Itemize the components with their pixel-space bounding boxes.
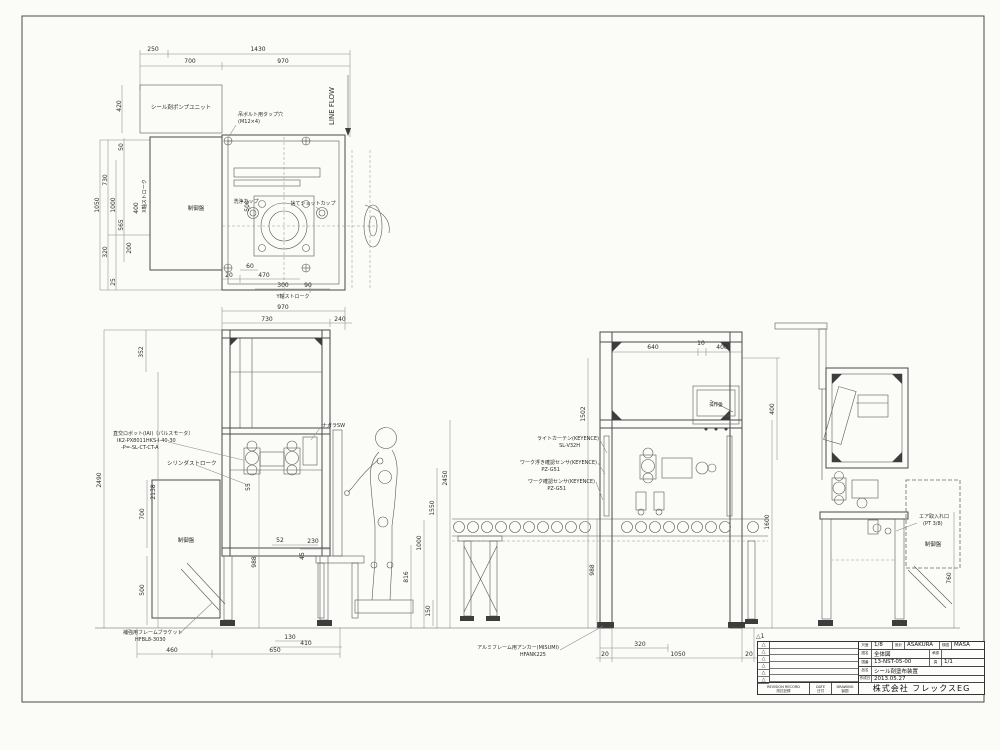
- dim-label: 250: [147, 46, 159, 53]
- drawing-number-label: 図番: [859, 659, 872, 666]
- date-label: 作成日: [859, 676, 872, 682]
- revision-mark-column: △ △ △ △ △ △: [758, 642, 770, 682]
- scale-label: 尺度: [859, 642, 872, 649]
- dim-label: 20: [225, 272, 233, 279]
- dim-label: 55: [245, 483, 252, 491]
- dim-label: 25: [110, 278, 117, 286]
- front-view-geometry: [104, 307, 450, 658]
- dim-label: 200: [126, 242, 133, 254]
- frame-bracket-callout: 補強用フレームブラケット: [123, 629, 183, 636]
- title-block-main: 尺度 1/8 設計 ASAKURA 検図 MASA 図名 全体図 承認 図番 1…: [859, 642, 984, 694]
- cylinder-stroke-callout: シリンダストローク: [167, 459, 217, 467]
- nagara-sw-callout: ナガラSW: [322, 422, 345, 429]
- dim-label: 1000: [416, 535, 423, 550]
- date-value: 2013.05.27: [872, 676, 984, 682]
- title-row-product: 品名 シール剤塗布装置: [859, 667, 984, 676]
- work-sensor-callout: ワーク確認センサ(KEYENCE): [528, 478, 595, 485]
- dim-label: 20: [745, 651, 753, 658]
- dim-label: 50: [118, 143, 125, 151]
- air-inlet-callout: (PT 3/8): [923, 521, 943, 527]
- light-curtain-callout: ライトカーテン(KEYENCE): [537, 436, 599, 442]
- dim-label: 700: [184, 58, 196, 65]
- title-row-scale: 尺度 1/8 設計 ASAKURA 検図 MASA: [859, 642, 984, 650]
- dim-label: 230: [307, 538, 319, 545]
- revision-header: REVISION RECORD改訂記録 DATE日付 DRAWING製図: [758, 682, 858, 694]
- dim-label: 60: [246, 263, 254, 270]
- dim-label: 320: [634, 641, 646, 648]
- control-panel-label: 制御盤: [925, 540, 942, 548]
- waste-shot-cup-label: 捨てショットカップ: [290, 200, 335, 207]
- checked-label: 検図: [939, 642, 952, 649]
- drawing-page: 250 1430 700 970 1050 730 320 1000 25 50…: [0, 0, 1000, 750]
- title-row-number: 図番 13-NST-05-00 頁 1/1: [859, 659, 984, 667]
- designed-label: 設計: [892, 642, 905, 649]
- dim-label: 90: [304, 282, 312, 289]
- eyebolt-callout: (M12×4): [238, 119, 260, 125]
- dim-label: 650: [269, 647, 281, 654]
- dim-label: 460: [166, 647, 178, 654]
- date-column-header: DATE日付: [810, 683, 832, 694]
- revision-rows: [770, 642, 858, 682]
- dim-label: 1550: [429, 500, 436, 515]
- light-curtain-callout: SL-V32H: [559, 443, 580, 449]
- control-panel-label: 制御盤: [188, 204, 205, 212]
- revision-table: △ △ △ △ △ △ REVISION RECORD改訂記録 DATE日付 D…: [758, 642, 859, 694]
- dim-label: 640: [647, 344, 659, 351]
- air-inlet-callout: エア取入れ口: [919, 514, 949, 520]
- line-flow-label: LINE FLOW: [328, 87, 336, 125]
- dim-label: 700: [139, 508, 146, 520]
- dim-label: 1430: [250, 46, 265, 53]
- dim-label: 20: [601, 651, 609, 658]
- station-view: 640 10 400 400 1502 988 1600 ライトカーテン(KEY…: [452, 332, 780, 662]
- dim-label: 988: [251, 556, 258, 568]
- revision-mark: △: [758, 642, 769, 649]
- product-label: 品名: [859, 667, 872, 675]
- title-row-name: 図名 全体図 承認: [859, 650, 984, 659]
- dim-label: 730: [261, 316, 273, 323]
- eyebolt-callout: 吊ボルト用タップ穴: [238, 111, 283, 118]
- drawing-name-value: 全体図: [872, 650, 929, 658]
- drawing-column-header: DRAWING製図: [832, 683, 858, 694]
- sheet-value: 1/1: [942, 659, 984, 666]
- dim-label: 2490: [96, 472, 103, 487]
- drawing-number-value: 13-NST-05-00: [872, 659, 929, 666]
- y-axis-stroke-label: Y軸ストローク: [275, 293, 309, 300]
- dim-label: 150: [425, 605, 432, 617]
- dim-label: 470: [258, 272, 270, 279]
- frame-anchor-callout: HFANK225: [520, 652, 546, 658]
- plan-view: 250 1430 700 970 1050 730 320 1000 25 50…: [94, 46, 389, 300]
- dim-label: 730: [102, 174, 109, 186]
- control-panel-label: 制御盤: [178, 536, 195, 544]
- work-float-sensor-callout: ワーク浮き確認センサ(KEYENCE): [520, 459, 597, 466]
- title-row-date: 作成日 2013.05.27: [859, 676, 984, 683]
- dim-label: 500: [139, 584, 146, 596]
- robot-callout: -P=-SL-CT-CT-A: [121, 445, 159, 451]
- dim-label: 1050: [670, 651, 685, 658]
- revision-record-header: REVISION RECORD改訂記録: [758, 683, 810, 694]
- front-view: 970 730 240 352 2490 2138 700 500 988 55…: [96, 304, 450, 658]
- revision-tag: △1: [756, 633, 765, 640]
- dim-label: 400: [133, 202, 140, 214]
- dim-label: 970: [277, 58, 289, 65]
- side-view: エア取入れ口 (PT 3/8) 制御盤 760: [775, 323, 960, 628]
- designed-value: ASAKURA: [905, 642, 939, 649]
- revision-mark: △: [758, 649, 769, 656]
- revision-mark: △: [758, 663, 769, 670]
- product-value: シール剤塗布装置: [872, 667, 984, 675]
- robot-callout: IK2-PX8011HKS-I-40-30: [117, 438, 176, 444]
- drawing-canvas: 250 1430 700 970 1050 730 320 1000 25 50…: [0, 0, 1000, 750]
- dim-label: 410: [300, 640, 312, 647]
- company-name: 株式会社 フレックスEG: [859, 683, 984, 694]
- checked-value: MASA: [952, 642, 984, 649]
- dim-label: 130: [284, 634, 296, 641]
- dim-label: 500: [244, 200, 251, 212]
- operation-panel-label: 操作盤: [709, 401, 723, 408]
- dim-label: 988: [589, 564, 596, 576]
- dim-label: 1050: [94, 197, 101, 212]
- title-block: △ △ △ △ △ △ REVISION RECORD改訂記録 DATE日付 D…: [757, 641, 985, 695]
- operator-mannequin: [345, 428, 414, 614]
- approved-value: [942, 650, 984, 658]
- dim-label: 2450: [442, 470, 449, 485]
- dim-label: 45: [299, 552, 306, 560]
- dim-label: 300: [277, 282, 289, 289]
- revision-mark: △: [758, 656, 769, 663]
- robot-callout: 直交ロボット(IAI)〔パルスモータ〕: [113, 430, 193, 437]
- dim-label: 1600: [764, 514, 771, 529]
- approved-label: 承認: [929, 650, 942, 658]
- dim-label: 320: [102, 246, 109, 258]
- dim-label: 400: [716, 344, 728, 351]
- dim-label: 352: [138, 346, 145, 358]
- dim-label: 1502: [580, 406, 587, 421]
- conveyor-rollers: [454, 522, 759, 533]
- work-float-sensor-callout: PZ-G51: [541, 467, 560, 473]
- dim-label: 1000: [110, 197, 117, 212]
- revision-mark: △: [758, 670, 769, 677]
- dim-label: 10: [697, 340, 705, 347]
- dim-label: 240: [334, 316, 346, 323]
- dim-label: 760: [946, 572, 953, 584]
- x-axis-stroke-label: X軸ストローク: [141, 179, 148, 212]
- frame-bracket-callout: HFBL8-3030: [135, 637, 166, 643]
- dim-label: 400: [769, 403, 776, 415]
- sheet-label: 頁: [929, 659, 942, 666]
- plan-view-geometry: [100, 50, 389, 296]
- dim-label: 52: [276, 537, 284, 544]
- frame-anchor-callout: アルミフレーム用アンカー(MISUMI): [477, 645, 559, 651]
- pump-unit-label: シール剤ポンプユニット: [151, 103, 211, 111]
- dim-label: 816: [403, 571, 410, 583]
- dim-label: 420: [116, 100, 123, 112]
- drawing-name-label: 図名: [859, 650, 872, 658]
- dim-label: 970: [277, 304, 289, 311]
- sheet-frame: [22, 16, 984, 702]
- work-sensor-callout: PZ-G51: [547, 486, 566, 492]
- scale-value: 1/8: [872, 642, 892, 649]
- dim-label: 565: [118, 219, 125, 231]
- station-view-geometry: [452, 332, 780, 662]
- dim-label: 2138: [150, 484, 157, 499]
- side-view-geometry: [775, 323, 960, 628]
